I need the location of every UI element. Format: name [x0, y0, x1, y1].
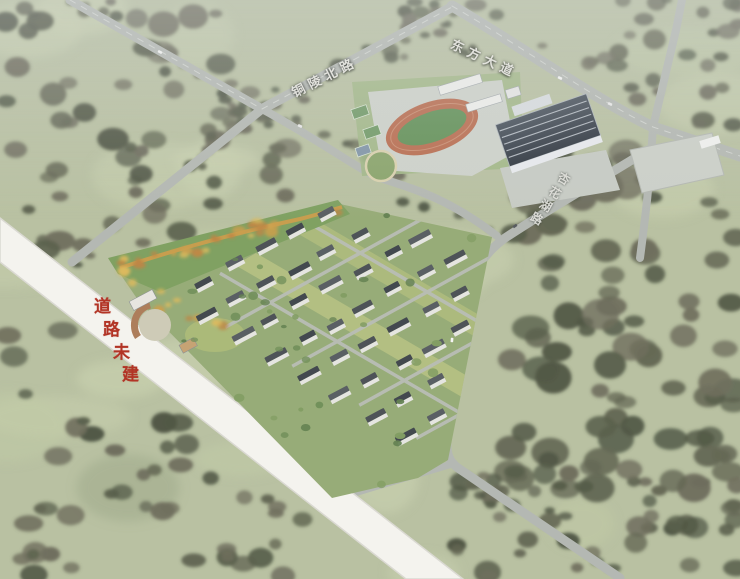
rendering-canvas: [0, 0, 740, 579]
atmospheric-haze: [0, 0, 740, 579]
aerial-masterplan-rendering: 铜陵北路 东方大道 杏花湖路 道路未建: [0, 0, 740, 579]
